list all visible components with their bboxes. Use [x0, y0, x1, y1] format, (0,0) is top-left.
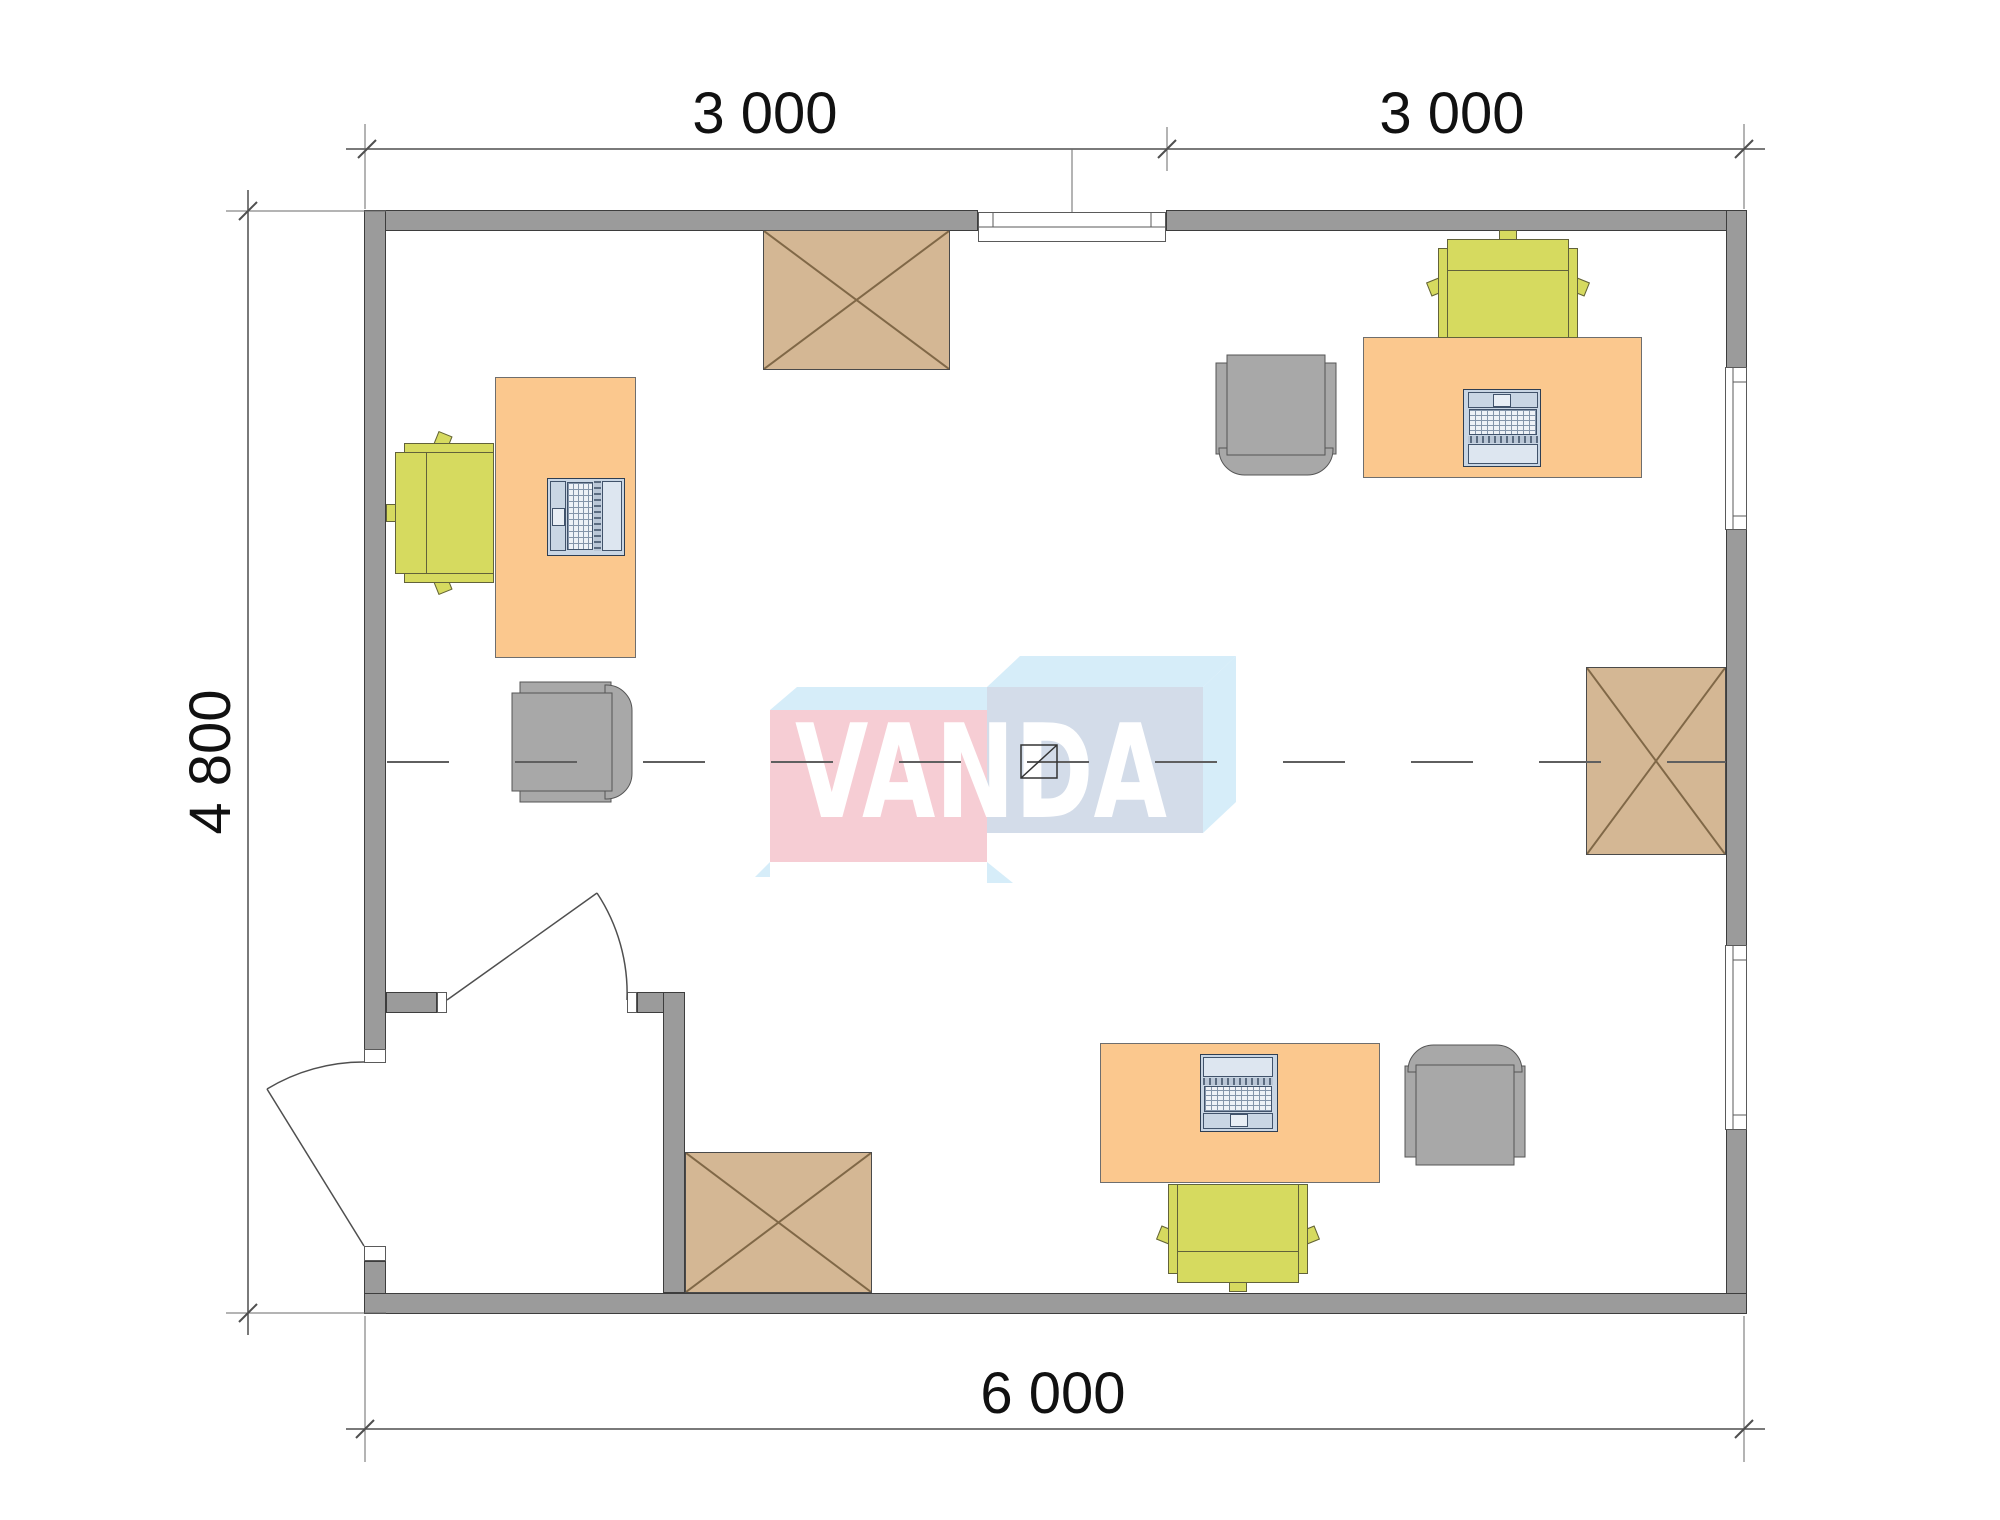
- cabinet-x-icon: [686, 1153, 871, 1292]
- wall-top-right-segment: [1166, 210, 1747, 231]
- wall-right-upper: [1726, 210, 1747, 368]
- chair-headrest: [1499, 230, 1517, 240]
- chair-seat: [1447, 270, 1569, 338]
- task-chair-bottom: [1159, 1184, 1317, 1292]
- armchair-seat: [1227, 355, 1326, 456]
- laptop-top-left: [547, 478, 625, 556]
- chair-headrest: [1229, 1282, 1247, 1292]
- interior-door: [447, 893, 627, 1000]
- chair-headrest: [386, 504, 396, 522]
- laptop-touchpad: [1493, 394, 1511, 407]
- cabinet-top: [763, 230, 950, 370]
- wall-top-left-segment: [364, 210, 978, 231]
- dimension-bottom: 6 000: [346, 1316, 1765, 1462]
- entry-door-jamb-top: [364, 1049, 386, 1063]
- logo-box-side-face: [1203, 656, 1236, 833]
- wall-left-lower-stub: [364, 1261, 386, 1294]
- watermark-text: VANDA: [795, 696, 1167, 848]
- cabinet-x-icon: [1587, 668, 1725, 854]
- dim-tick-icon: [239, 202, 257, 220]
- armchair-top-right: [1216, 355, 1337, 476]
- logo-blue-box: [987, 687, 1203, 833]
- chair-backrest: [1177, 1251, 1299, 1283]
- chair-seat: [1177, 1184, 1299, 1252]
- entry-door: [267, 1062, 364, 1246]
- laptop-keyboard: [1204, 1086, 1272, 1112]
- wall-bottom: [364, 1293, 1747, 1314]
- dim-tick-icon: [1735, 1420, 1753, 1438]
- laptop-touchpad: [1230, 1114, 1248, 1127]
- dimension-left: 4 800: [178, 190, 386, 1335]
- laptop-screen: [602, 481, 622, 551]
- vanda-watermark-logo: VANDA: [750, 650, 1250, 895]
- window-top: [978, 212, 1166, 242]
- dim-label-left: 4 800: [178, 689, 243, 834]
- vestibule-wall-vertical: [663, 992, 685, 1293]
- logo-pink-box: [770, 710, 987, 862]
- cabinet-bottom: [685, 1152, 872, 1293]
- laptop-hinge: [1468, 436, 1538, 443]
- dim-tick-icon: [239, 1304, 257, 1322]
- logo-wedge: [755, 862, 770, 877]
- armrest-icon: [520, 791, 612, 803]
- dim-tick-icon: [1735, 140, 1753, 158]
- wall-right-middle: [1726, 529, 1747, 946]
- dim-tick-icon: [356, 1420, 374, 1438]
- laptop-hinge: [594, 481, 601, 551]
- chair-side: [1298, 1184, 1308, 1274]
- armchair-left: [512, 682, 633, 803]
- cabinet-x-icon: [764, 231, 949, 369]
- chair-backrest: [395, 452, 427, 574]
- armchair-bottom-right: [1405, 1045, 1526, 1166]
- interior-door-jamb-right: [627, 992, 637, 1013]
- dimension-top: 3 000 3 000: [346, 81, 1765, 212]
- logo-box-top-face: [987, 656, 1236, 687]
- laptop-bottom: [1200, 1054, 1278, 1132]
- axis-marker-icon: [1021, 745, 1057, 778]
- task-chair-top-left: [386, 434, 494, 592]
- laptop-keyboard: [567, 482, 593, 550]
- laptop-touchpad: [552, 508, 565, 526]
- dim-label-bottom: 6 000: [980, 1361, 1125, 1426]
- window-right-lower: [1725, 945, 1747, 1130]
- chair-seat: [426, 452, 494, 574]
- entry-door-jamb-bottom: [364, 1246, 386, 1261]
- interior-door-jamb-left: [437, 992, 447, 1013]
- armrest-icon: [1325, 363, 1337, 455]
- laptop-hinge: [1203, 1078, 1273, 1085]
- wall-left-upper: [364, 210, 386, 1050]
- logo-box-top-face: [770, 687, 1013, 710]
- logo-wedge: [987, 862, 1013, 883]
- chair-side: [404, 573, 494, 583]
- laptop-top-right: [1463, 389, 1541, 467]
- dim-tick-icon: [1158, 140, 1176, 158]
- armchair-seat: [512, 693, 613, 792]
- floor-plan: VANDA: [0, 0, 2000, 1520]
- task-chair-top-right: [1429, 230, 1587, 338]
- vestibule-wall-stub-left: [386, 992, 437, 1013]
- laptop-screen: [1468, 444, 1538, 464]
- dim-tick-icon: [358, 140, 376, 158]
- chair-backrest: [1447, 239, 1569, 271]
- chair-side: [1568, 248, 1578, 338]
- dim-label-top-left: 3 000: [692, 81, 837, 146]
- armchair-seat: [1416, 1065, 1515, 1166]
- window-right-upper: [1725, 367, 1747, 530]
- wall-right-lower: [1726, 1129, 1747, 1314]
- armrest-icon: [1514, 1066, 1526, 1158]
- laptop-keyboard: [1469, 409, 1537, 435]
- laptop-screen: [1203, 1057, 1273, 1077]
- cabinet-right: [1586, 667, 1726, 855]
- dim-label-top-right: 3 000: [1379, 81, 1524, 146]
